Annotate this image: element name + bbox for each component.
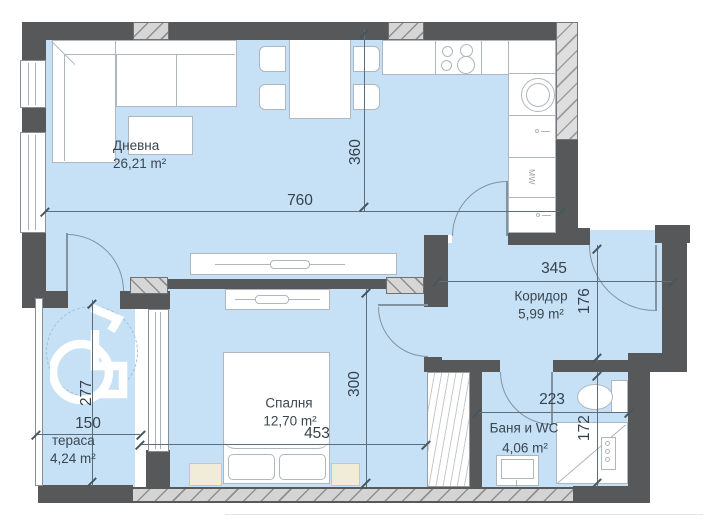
wall — [22, 231, 46, 293]
dimension-line-bathroom-depth — [597, 372, 598, 487]
dining-chair — [259, 46, 286, 72]
nightstand — [189, 463, 222, 486]
wall — [556, 140, 578, 228]
kitchen-sink-icon — [526, 83, 550, 107]
installation-shaft — [427, 372, 470, 487]
appliance-knob-icon — [536, 213, 540, 217]
nightstand — [331, 463, 360, 486]
room-area-corridor: 5,99 m² — [518, 307, 564, 322]
wall — [146, 450, 170, 487]
shower-control-icon — [605, 457, 610, 462]
dining-chair — [353, 84, 380, 110]
counter-seam — [509, 197, 555, 198]
room-name-bathroom: Баня и WC — [490, 421, 559, 436]
window — [20, 132, 46, 233]
entrance-doorway-floor — [590, 230, 655, 245]
bedroom-door-leaf — [378, 304, 428, 306]
doorway-floor — [500, 360, 553, 372]
wall — [424, 235, 448, 307]
dimension-line-bathroom-width — [477, 412, 628, 413]
wall — [553, 360, 628, 372]
dimension-line-bedroom-width — [140, 444, 425, 445]
sliding-arrow-head — [255, 295, 289, 304]
appliance-knob-icon — [535, 129, 539, 133]
wall-column-hatched — [386, 277, 424, 294]
terrace-parapet — [35, 298, 43, 486]
counter-seam — [481, 41, 482, 74]
dimension-line-corridor-depth — [597, 245, 598, 362]
sliding-partition-wall — [166, 279, 390, 289]
appliance-mark — [542, 215, 551, 216]
room-name-terrace: тераса — [52, 433, 95, 448]
toilet-tank — [611, 380, 628, 413]
wall — [470, 372, 482, 487]
wheelchair-icon — [50, 300, 136, 428]
wall — [662, 233, 687, 367]
dimension-line-living-width — [45, 211, 560, 212]
dimension-label: 172 — [576, 415, 594, 441]
dimension-label: 345 — [541, 260, 567, 278]
apartment-floor-plan: MW — [0, 0, 705, 530]
balcony-slab-hatched — [133, 487, 573, 503]
wall — [424, 360, 500, 372]
room-name-bedroom: Спалня — [265, 396, 312, 411]
stove-burner-icon — [457, 56, 475, 74]
dimension-label: 150 — [75, 415, 101, 433]
dimension-label: 277 — [78, 380, 96, 406]
entrance-door-leaf — [655, 245, 657, 311]
dimension-label: 176 — [576, 288, 594, 314]
sliding-arrow-head — [270, 260, 310, 269]
room-area-bedroom: 12,70 m² — [263, 414, 316, 429]
wall — [22, 106, 46, 134]
bedroom-terrace-window — [148, 309, 169, 452]
wall — [22, 291, 68, 308]
wall — [508, 233, 590, 245]
counter-seam — [509, 115, 555, 116]
dimension-line-corridor-width — [437, 281, 672, 282]
bathroom-sink-basin — [501, 459, 534, 479]
dimension-label: 300 — [346, 371, 364, 397]
pillow — [228, 454, 275, 480]
dimension-label: 360 — [347, 139, 365, 165]
counter-seam — [508, 41, 509, 74]
wall — [573, 486, 650, 503]
sofa-seam — [64, 54, 235, 55]
sofa-seam — [64, 54, 65, 161]
stove-burner-icon — [441, 60, 452, 71]
dimension-label: 760 — [287, 192, 313, 210]
room-area-bathroom: 4,06 m² — [502, 441, 548, 456]
stove-burner-icon — [442, 46, 453, 57]
shower-control-icon — [605, 441, 610, 446]
room-area-living: 26,21 m² — [113, 156, 166, 171]
dimension-line-bedroom-depth — [366, 289, 367, 487]
dimension-label: 223 — [539, 391, 565, 409]
toilet-bowl — [577, 384, 613, 410]
page-divider-line — [225, 514, 703, 515]
dimension-line-living-depth — [364, 30, 365, 211]
wall-column-hatched — [133, 22, 169, 40]
wall-column-hatched — [388, 22, 424, 40]
wall — [30, 22, 578, 40]
dining-chair — [353, 46, 380, 72]
appliance-mark — [541, 131, 550, 132]
wall — [22, 22, 46, 62]
dining-table — [289, 36, 351, 119]
room-area-terrace: 4,24 m² — [50, 451, 96, 466]
corner-sofa — [52, 40, 116, 163]
sofa-seam — [176, 54, 177, 107]
wall — [655, 225, 690, 243]
counter-seam — [509, 157, 555, 158]
room-name-corridor: Коридор — [514, 289, 567, 304]
dining-chair — [259, 84, 286, 110]
window — [20, 60, 46, 108]
room-name-living: Дневна — [113, 138, 159, 153]
microwave-label: MW — [527, 169, 537, 185]
wall — [628, 372, 650, 487]
exterior-wall-hatched — [556, 22, 578, 140]
pillow — [279, 454, 326, 480]
wall — [38, 485, 133, 503]
wall-column-hatched — [130, 277, 168, 294]
shower-control-icon — [605, 449, 610, 454]
sofa-seam — [116, 54, 117, 107]
counter-seam — [435, 41, 436, 74]
